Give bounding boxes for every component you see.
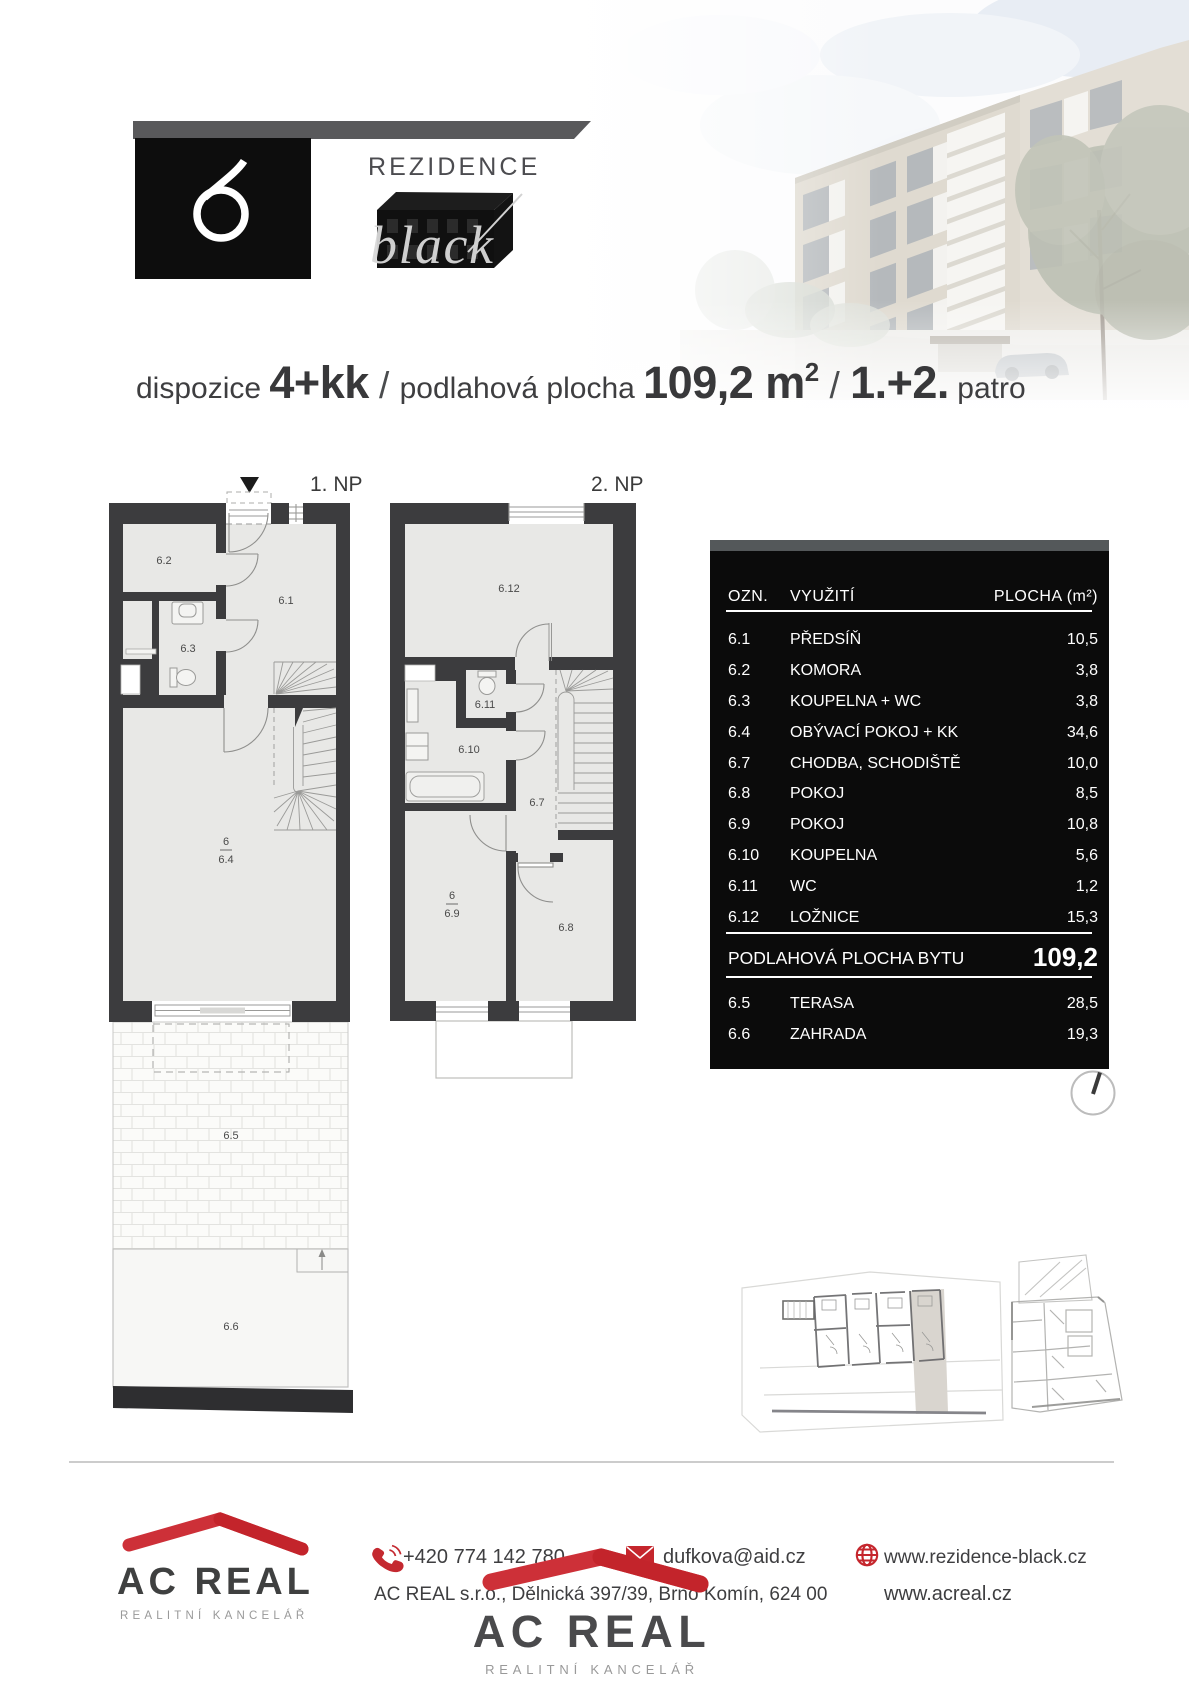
svg-text:6.4: 6.4 [218, 854, 233, 866]
svg-text:AC REAL: AC REAL [117, 1561, 314, 1603]
svg-text:AC REAL s.r.o., Dělnická 397/3: AC REAL s.r.o., Dělnická 397/39, Brno Ko… [374, 1584, 827, 1605]
svg-text:6.5: 6.5 [223, 1130, 238, 1142]
svg-text:6.7: 6.7 [529, 797, 544, 809]
svg-text:dufkova@aid.cz: dufkova@aid.cz [663, 1546, 806, 1568]
svg-text:6.1: 6.1 [278, 595, 293, 607]
svg-text:6.2: 6.2 [156, 555, 171, 567]
svg-text:6.8: 6.8 [558, 922, 573, 934]
svg-text:6.3: 6.3 [180, 643, 195, 655]
svg-text:6.10: 6.10 [458, 744, 479, 756]
svg-text:1. NP: 1. NP [310, 473, 363, 496]
svg-text:6.9: 6.9 [444, 908, 459, 920]
svg-text:AC REAL: AC REAL [473, 1606, 712, 1657]
svg-text:www.acreal.cz: www.acreal.cz [883, 1583, 1012, 1605]
svg-text:REZIDENCE: REZIDENCE [368, 153, 540, 181]
svg-text:6.11: 6.11 [475, 699, 496, 711]
svg-text:6.12: 6.12 [498, 583, 519, 595]
svg-text:6: 6 [449, 890, 455, 902]
svg-text:6: 6 [223, 836, 229, 848]
svg-text:REALITNÍ KANCELÁŘ: REALITNÍ KANCELÁŘ [485, 1662, 699, 1677]
svg-text:6.6: 6.6 [223, 1321, 238, 1333]
svg-text:2. NP: 2. NP [591, 473, 644, 496]
svg-text:REALITNÍ KANCELÁŘ: REALITNÍ KANCELÁŘ [120, 1609, 308, 1622]
svg-text:www.rezidence-black.cz: www.rezidence-black.cz [883, 1547, 1087, 1568]
